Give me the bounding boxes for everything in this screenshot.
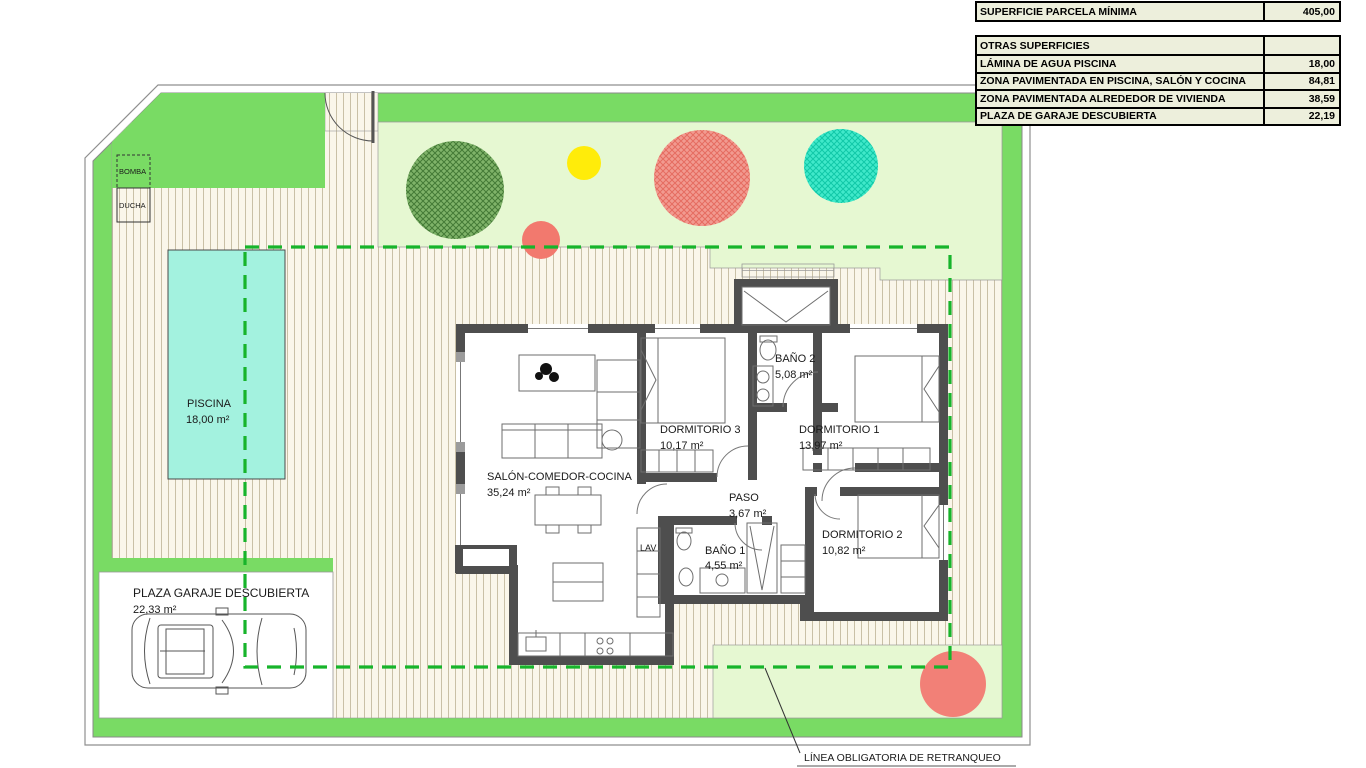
piscina-area: 18,00 m² (186, 414, 230, 426)
table-header-value (1263, 37, 1339, 54)
pool (168, 250, 285, 479)
table-row-value: 18,00 (1263, 56, 1339, 71)
table-row-label: ZONA PAVIMENTADA EN PISCINA, SALÓN Y COC… (977, 75, 1263, 87)
tree-yellow-icon (567, 146, 601, 180)
table-row: OTRAS SUPERFICIES (977, 37, 1339, 54)
dormitorio3-area: 10,17 m² (660, 440, 704, 452)
bano2-name: BAÑO 2 (775, 352, 815, 365)
table-row: PLAZA DE GARAJE DESCUBIERTA 22,19 (977, 107, 1339, 124)
table-row-label: ZONA PAVIMENTADA ALREDEDOR DE VIVIENDA (977, 93, 1263, 105)
dormitorio1-name: DORMITORIO 1 (799, 424, 879, 436)
garaje-name: PLAZA GARAJE DESCUBIERTA (133, 586, 309, 600)
garage-grass-strip (99, 558, 333, 572)
lav-label: LAV (640, 543, 656, 553)
dormitorio3-name: DORMITORIO 3 (660, 424, 740, 436)
piscina-name: PISCINA (187, 398, 232, 410)
table-row: ZONA PAVIMENTADA ALREDEDOR DE VIVIENDA 3… (977, 89, 1339, 106)
dormitorio2-name: DORMITORIO 2 (822, 529, 902, 541)
tree-dark-green-icon (406, 141, 504, 239)
otras-superficies-table: OTRAS SUPERFICIES LÁMINA DE AGUA PISCINA… (975, 35, 1341, 126)
table-header-label: OTRAS SUPERFICIES (977, 40, 1263, 52)
entrance-walkway (325, 91, 378, 131)
table-row: SUPERFICIE PARCELA MÍNIMA 405,00 (977, 3, 1339, 20)
car-icon (132, 608, 306, 694)
table-row-label: PLAZA DE GARAJE DESCUBIERTA (977, 110, 1263, 122)
porch-planter (455, 545, 517, 573)
bomba-label: BOMBA (119, 167, 146, 176)
ducha-label: DUCHA (119, 201, 146, 210)
shrub-salmon-bottom-icon (920, 651, 986, 717)
garaje-area: 22,33 m² (133, 604, 177, 616)
tree-salmon-large-icon (654, 130, 750, 226)
parcela-minima-table: SUPERFICIE PARCELA MÍNIMA 405,00 (975, 1, 1341, 22)
retranqueo-label: LÍNEA OBLIGATORIA DE RETRANQUEO (804, 751, 1001, 764)
salon-area: 35,24 m² (487, 487, 531, 499)
table-row-label: LÁMINA DE AGUA PISCINA (977, 58, 1263, 70)
dormitorio2-area: 10,82 m² (822, 545, 866, 557)
table-row-value: 22,19 (1263, 109, 1339, 124)
table-row-label: SUPERFICIE PARCELA MÍNIMA (977, 6, 1263, 18)
table-row: ZONA PAVIMENTADA EN PISCINA, SALÓN Y COC… (977, 72, 1339, 89)
shrub-salmon-small-icon (522, 221, 560, 259)
bano2-area: 5,08 m² (775, 369, 813, 381)
table-row-value: 38,59 (1263, 91, 1339, 106)
bano1-name: BAÑO 1 (705, 544, 745, 557)
salon-name: SALÓN-COMEDOR-COCINA (487, 470, 633, 483)
paso-area: 3,67 m² (729, 508, 767, 520)
table-row: LÁMINA DE AGUA PISCINA 18,00 (977, 54, 1339, 71)
bano1-area: 4,55 m² (705, 560, 743, 572)
table-row-value: 84,81 (1263, 74, 1339, 89)
site-plan-page: BOMBA DUCHA (0, 0, 1366, 768)
paso-name: PASO (729, 492, 759, 504)
dormitorio1-area: 13,97 m² (799, 440, 843, 452)
table-row-value: 405,00 (1263, 3, 1339, 20)
tree-teal-icon (804, 129, 878, 203)
